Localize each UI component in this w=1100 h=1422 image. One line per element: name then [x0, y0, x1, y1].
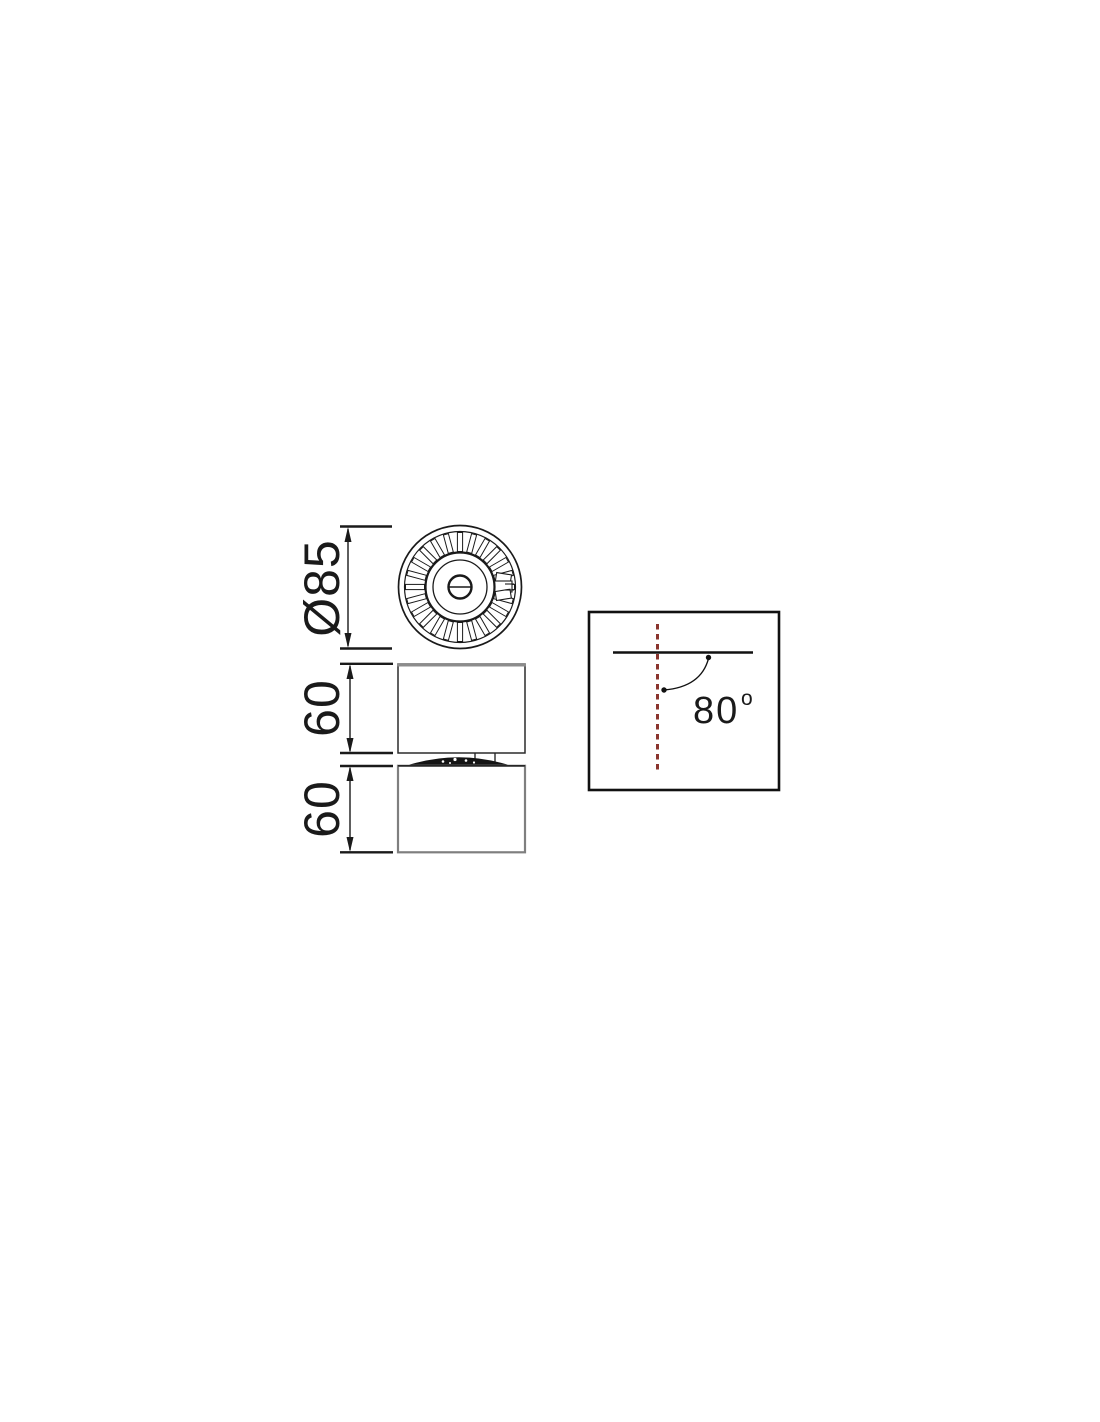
- side-view-upper-body: [398, 664, 525, 753]
- dim-height-lower-label: 60: [294, 780, 350, 838]
- side-view-lower-body: [398, 766, 525, 853]
- tilt-arc-endpoint-lower: [661, 687, 666, 692]
- drawing-sheet: Ø85 60: [0, 0, 1100, 1422]
- side-view-lower: [398, 758, 525, 853]
- dim-height-upper: 60: [294, 664, 393, 753]
- tilt-angle-degree-symbol: o: [741, 687, 753, 710]
- dim-diameter: Ø85: [294, 527, 392, 649]
- side-view-upper: [397, 664, 526, 765]
- dim-height-upper-arrow-down: [347, 738, 354, 753]
- tilt-diagram: 80 o: [589, 612, 779, 790]
- tilt-arc-endpoint-upper: [706, 655, 711, 660]
- top-view-latch-detail: [493, 573, 514, 601]
- screw-slot-icon: [449, 576, 472, 599]
- top-view: [399, 526, 522, 649]
- dim-height-lower-arrow-down: [347, 837, 354, 852]
- tilt-angle-label: 80: [693, 690, 739, 732]
- technical-drawing: Ø85 60: [0, 0, 1100, 1422]
- dim-height-lower: 60: [294, 766, 393, 852]
- dim-diameter-label: Ø85: [294, 539, 350, 637]
- dim-height-lower-arrow-up: [347, 766, 354, 781]
- dim-height-upper-arrow-up: [347, 664, 354, 679]
- dim-height-upper-label: 60: [294, 679, 350, 737]
